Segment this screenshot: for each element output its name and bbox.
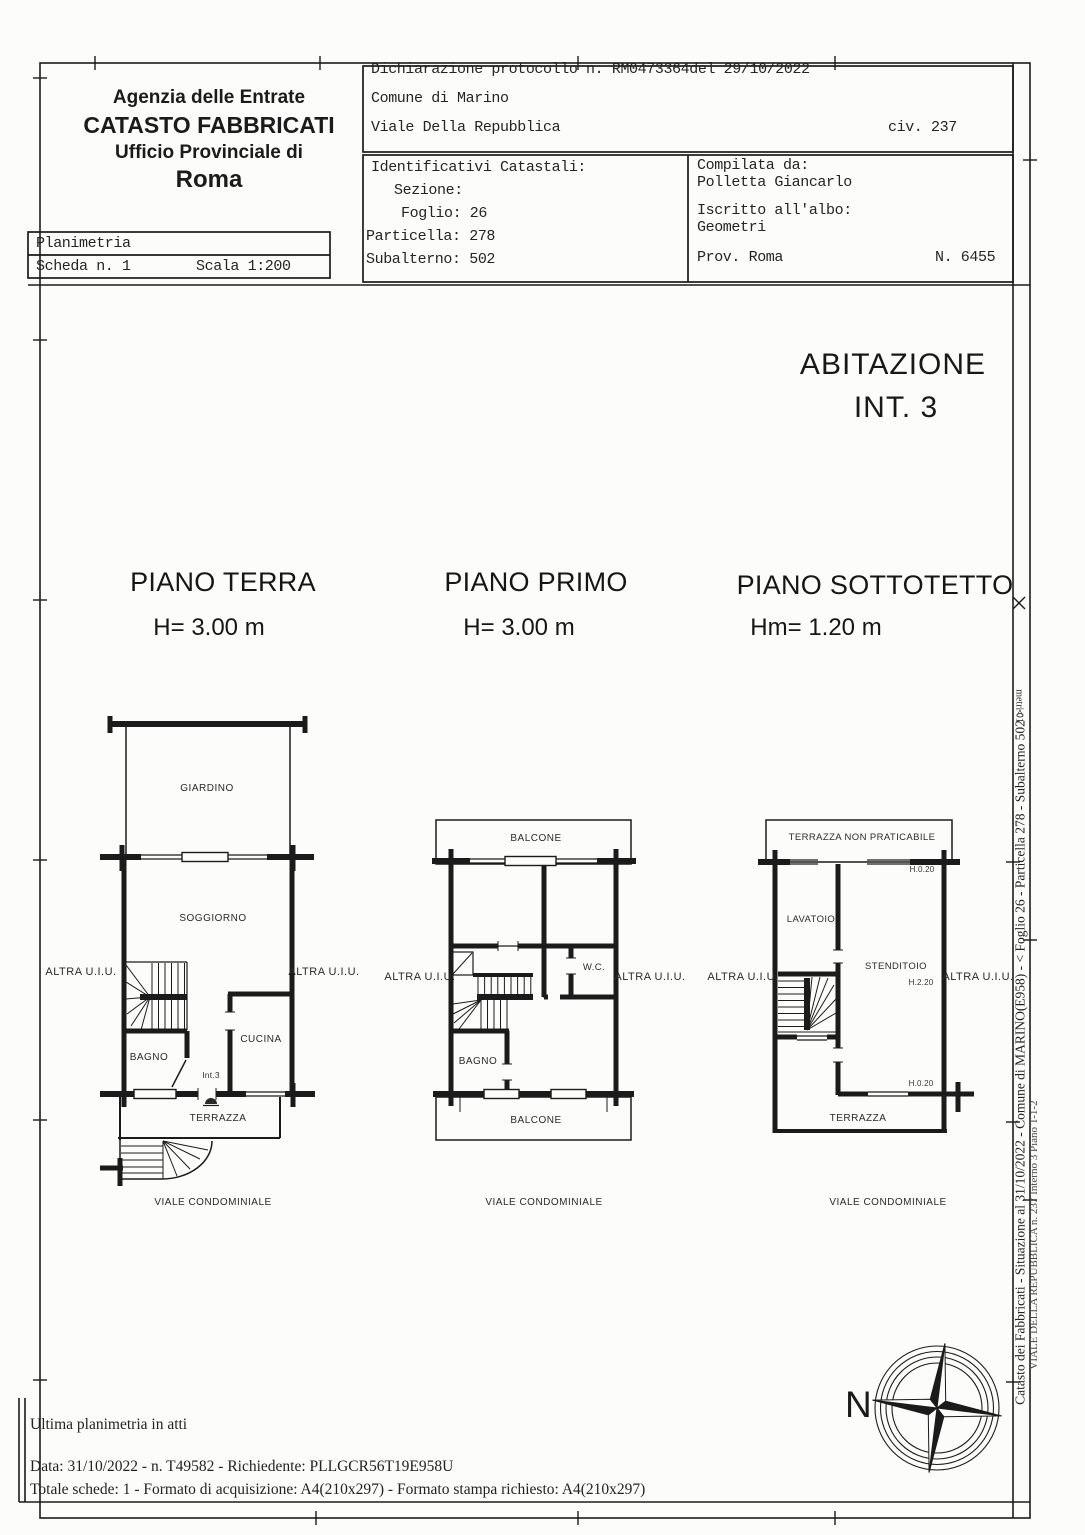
footer-format-info: Totale schede: 1 - Formato di acquisizio…: [30, 1481, 645, 1498]
compiler-name: Polletta Giancarlo: [697, 175, 852, 192]
street-label-terra: VIALE CONDOMINIALE: [154, 1197, 271, 1208]
room-label-lavatoio: LAVATOIO: [787, 915, 835, 925]
room-label-bagno-primo: BAGNO: [459, 1056, 498, 1067]
page-frame: [19, 56, 1037, 1525]
registry-name: Geometri: [697, 220, 766, 237]
comune-label: Comune di Marino: [371, 91, 509, 108]
room-label-terrazza-sotto: TERRAZZA: [830, 1113, 887, 1124]
floor-title-sottotetto: PIANO SOTTOTETTO: [737, 571, 1014, 601]
side-scale-ruler-label: metri 01: [1014, 689, 1025, 723]
side-cadastral-reference: Catasto dei Fabbricati - Situazione al 3…: [1014, 709, 1029, 1405]
adjacent-unit-label-terra-right: ALTRA U.I.U.: [288, 966, 359, 978]
floor-title-terra: PIANO TERRA: [130, 568, 316, 598]
adjacent-unit-label-sotto-right: ALTRA U.I.U.: [942, 971, 1013, 983]
room-label-terrazza-non-praticabile: TERRAZZA NON PRATICABILE: [789, 833, 936, 843]
protocol-declaration: Dichiarazione protocollo n. RM0473364del…: [371, 62, 810, 79]
scheda-number: Scheda n. 1: [36, 259, 131, 276]
height-label-mid: H.2.20: [909, 979, 934, 988]
particella-field: Particella: 278: [366, 229, 495, 246]
street-label-sottotetto: VIALE CONDOMINIALE: [829, 1197, 946, 1208]
registered-title: Iscritto all'albo:: [697, 203, 852, 220]
plan-linework: [0, 0, 1085, 1535]
scala-label: Scala 1:200: [196, 259, 291, 276]
floor-height-primo: H= 3.00 m: [463, 615, 574, 641]
primo-windows: [470, 859, 597, 946]
agency-name: Agenzia delle Entrate: [113, 88, 305, 109]
height-label-top: H.0.20: [910, 866, 935, 875]
unit-number-title: INT. 3: [854, 391, 938, 424]
primo-stair: [452, 952, 533, 1030]
floor-height-terra: H= 3.00 m: [153, 615, 264, 641]
piano-primo-plan: [432, 820, 636, 1140]
agency-city: Roma: [176, 167, 243, 193]
adjacent-unit-label-terra-left: ALTRA U.I.U.: [45, 966, 116, 978]
room-label-wc: W.C.: [583, 963, 605, 973]
registry-number: N. 6455: [935, 250, 995, 267]
civic-number: civ. 237: [888, 120, 957, 137]
province-field: Prov. Roma: [697, 250, 783, 267]
adjacent-unit-label-primo-right: ALTRA U.I.U.: [614, 971, 685, 983]
catasto-planimetria-page: Agenzia delle Entrate CATASTO FABBRICATI…: [0, 0, 1085, 1535]
unit-entrance-label: Int.3: [202, 1071, 220, 1080]
room-label-giardino: GIARDINO: [180, 783, 233, 794]
room-label-balcone-bottom: BALCONE: [510, 1115, 561, 1126]
room-label-terrazza-terra: TERRAZZA: [190, 1113, 247, 1124]
room-label-stenditoio: STENDITOIO: [865, 962, 927, 972]
cadastral-ids-title: Identificativi Catastali:: [371, 160, 586, 177]
footer-last-plan-note: Ultima planimetria in atti: [30, 1416, 187, 1433]
floor-title-primo: PIANO PRIMO: [444, 568, 627, 598]
planimetria-label: Planimetria: [36, 236, 131, 253]
entrance-door-icon: [205, 1098, 217, 1104]
compass-rose: [865, 1336, 1010, 1481]
terra-curved-stair: [120, 1140, 212, 1179]
foglio-field: Foglio: 26: [401, 206, 487, 223]
sotto-stair: [778, 977, 836, 1032]
adjacent-unit-label-primo-left: ALTRA U.I.U.: [384, 971, 455, 983]
agency-provincial-office: Ufficio Provinciale di: [115, 143, 303, 164]
subalterno-field: Subalterno: 502: [366, 252, 495, 269]
sezione-field: Sezione:: [394, 183, 463, 200]
street-label-primo: VIALE CONDOMINIALE: [485, 1197, 602, 1208]
room-label-bagno-terra: BAGNO: [130, 1052, 169, 1063]
agency-office: CATASTO FABBRICATI: [83, 113, 334, 138]
side-address-reference: VIALE DELLA REPUBBLICA n. 237 Interno 3 …: [1028, 1100, 1040, 1369]
compiled-by-title: Compilata da:: [697, 158, 809, 175]
floor-height-sottotetto: Hm= 1.20 m: [750, 615, 881, 641]
footer-request-info: Data: 31/10/2022 - n. T49582 - Richieden…: [30, 1458, 453, 1475]
room-label-soggiorno: SOGGIORNO: [179, 913, 246, 924]
adjacent-unit-label-sotto-left: ALTRA U.I.U.: [707, 971, 778, 983]
room-label-cucina: CUCINA: [240, 1034, 281, 1045]
address-label: Viale Della Repubblica: [371, 120, 560, 137]
north-label: N: [845, 1385, 872, 1426]
room-label-balcone-top: BALCONE: [510, 833, 561, 844]
terra-stair: [126, 962, 187, 1030]
height-label-bottom: H.0.20: [909, 1080, 934, 1089]
unit-type-title: ABITAZIONE: [800, 348, 986, 381]
